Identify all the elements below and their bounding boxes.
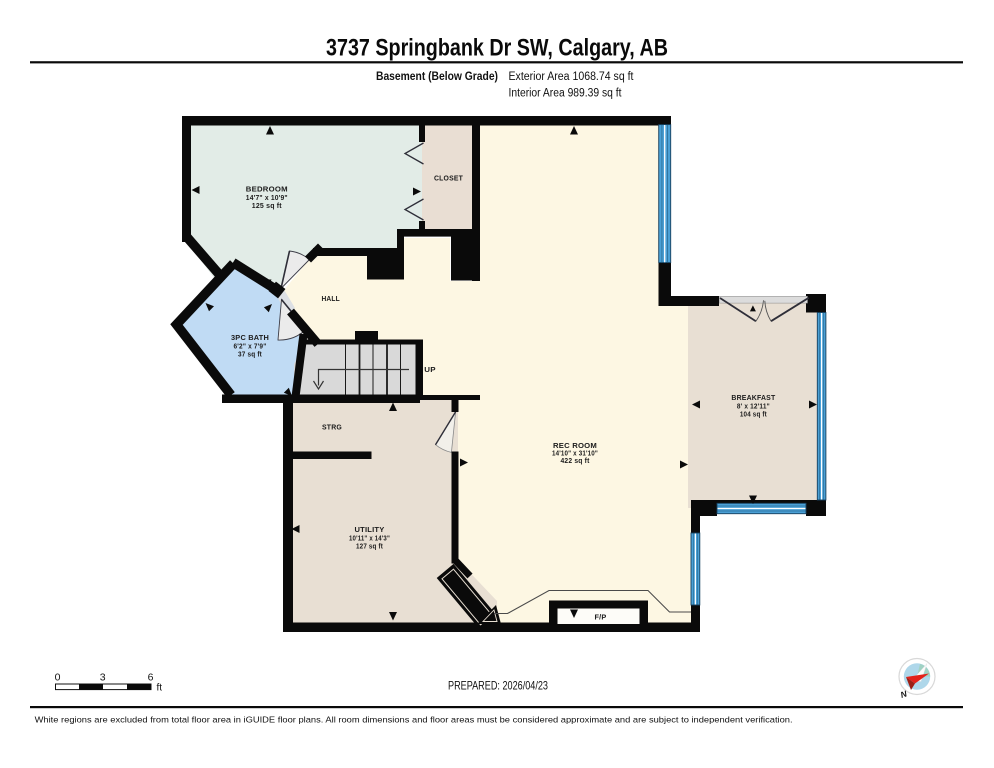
svg-text:UP: UP [424, 365, 436, 374]
svg-text:0: 0 [55, 672, 61, 684]
svg-text:Interior Area 989.39 sq ft: Interior Area 989.39 sq ft [509, 88, 623, 100]
svg-text:Basement (Below Grade): Basement (Below Grade) [376, 69, 498, 83]
svg-text:125 sq ft: 125 sq ft [252, 201, 282, 210]
svg-text:37 sq ft: 37 sq ft [238, 350, 262, 359]
svg-text:422 sq ft: 422 sq ft [561, 456, 590, 465]
svg-text:CLOSET: CLOSET [434, 174, 463, 183]
svg-text:F/P: F/P [595, 613, 607, 622]
svg-text:6: 6 [148, 672, 154, 684]
svg-text:PREPARED: 2026/04/23: PREPARED: 2026/04/23 [448, 678, 548, 692]
svg-text:HALL: HALL [321, 294, 340, 303]
svg-text:ft: ft [157, 683, 163, 694]
svg-text:STRG: STRG [322, 423, 342, 432]
svg-text:104 sq ft: 104 sq ft [740, 410, 767, 419]
svg-text:127 sq ft: 127 sq ft [356, 542, 383, 551]
svg-text:White regions are excluded fro: White regions are excluded from total fl… [35, 715, 793, 724]
svg-text:3737 Springbank Dr SW, Calgary: 3737 Springbank Dr SW, Calgary, AB [326, 35, 668, 62]
svg-text:3: 3 [100, 672, 106, 684]
svg-text:Exterior Area 1068.74 sq ft: Exterior Area 1068.74 sq ft [509, 71, 635, 83]
